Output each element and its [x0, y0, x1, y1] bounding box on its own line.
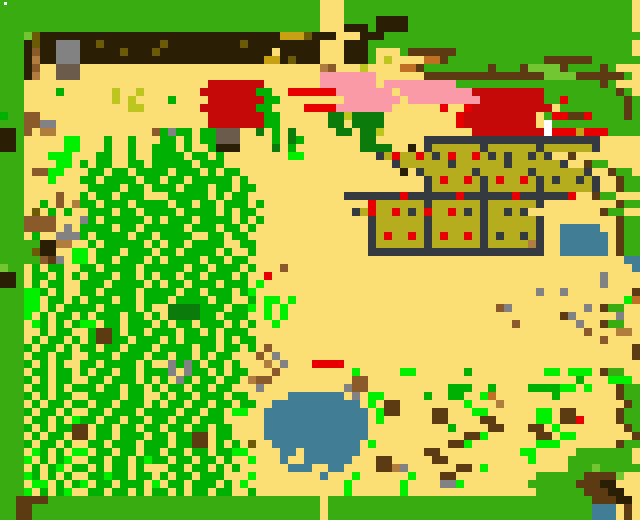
game-map-screenshot: [0, 0, 640, 520]
world-map-canvas[interactable]: [0, 0, 640, 520]
